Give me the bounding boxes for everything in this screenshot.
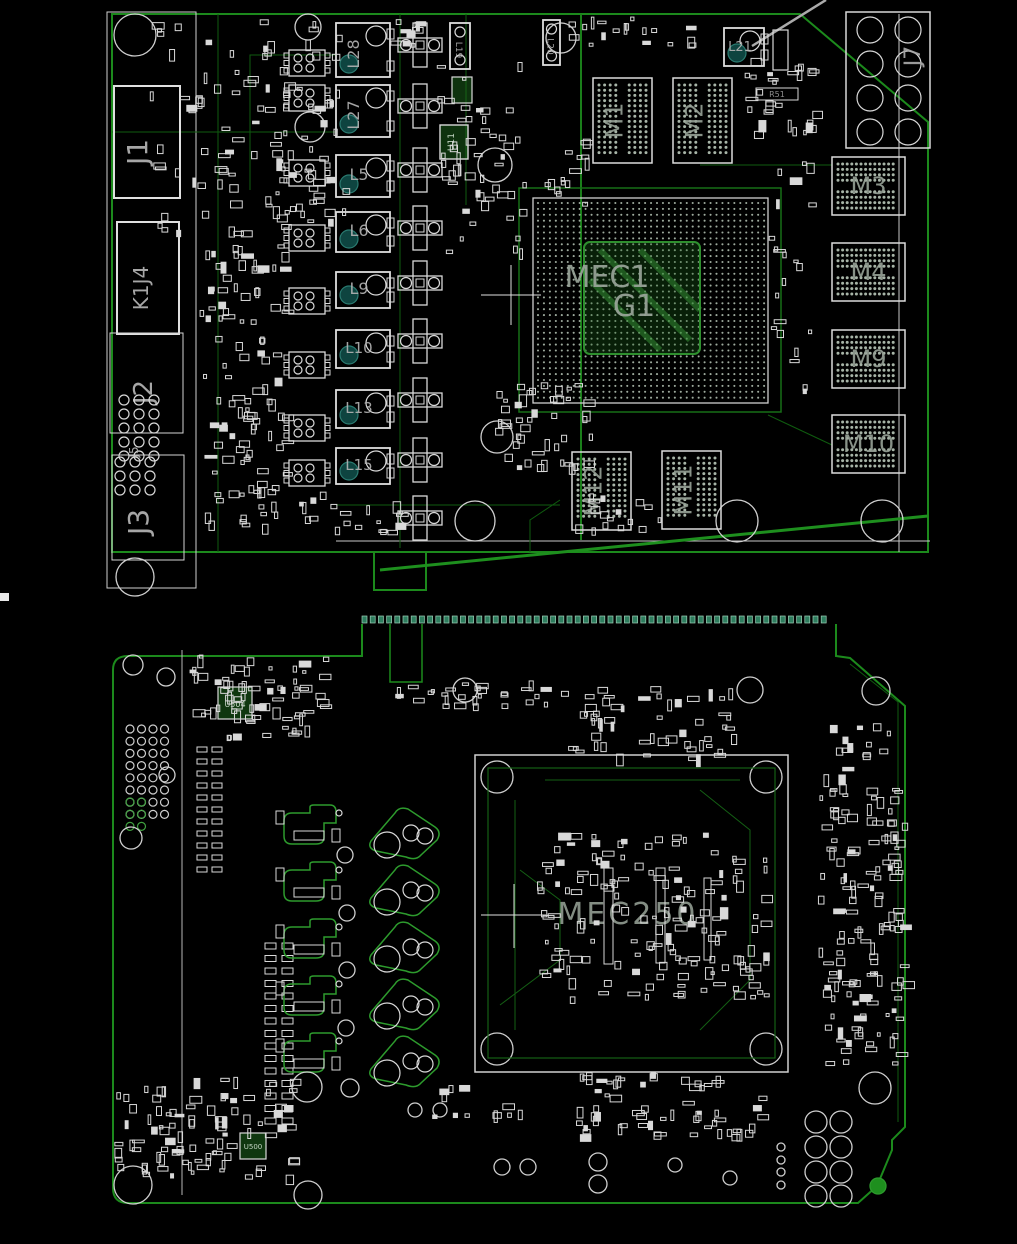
corner-hole [481,1033,513,1065]
driver-ic [284,352,330,378]
label-J1: J1 [121,139,154,167]
svg-text:K1J4: K1J4 [129,266,153,310]
svg-text:L28: L28 [344,39,363,68]
svg-text:L9: L9 [349,279,368,298]
mounting-hole [455,501,495,541]
hole [830,1136,852,1158]
chip-M10: M10 [832,415,905,473]
component-cluster [545,139,593,206]
via-grid [126,725,169,818]
inductor-L15: L15 [336,448,394,484]
svg-text:J3: J3 [122,509,155,537]
component-cluster [200,245,294,324]
label-J7: J7 [901,46,926,69]
trace [768,415,832,445]
pin-holes-J5 [115,457,155,495]
svg-text:J1: J1 [121,139,154,167]
hole [777,1156,785,1164]
chip-M4: M4 [832,243,905,301]
svg-text:G1: G1 [613,289,655,324]
component-cluster [818,724,914,1066]
connector-J3 [112,455,184,560]
copper-island [370,808,439,859]
hole [830,1111,852,1133]
edge-connector-pads [362,616,826,623]
svg-text:L10: L10 [345,339,372,357]
svg-text:M12: M12 [580,465,608,516]
hole [589,1175,607,1193]
copper-island [370,922,439,973]
mounting-hole [481,421,513,453]
copper-island [276,976,342,1015]
inductor-L5: L5 [336,155,394,197]
label-K1J4: K1J4 [129,266,153,310]
hole [777,1168,785,1176]
inductor-L13: L13 [336,390,394,428]
svg-text:L13: L13 [345,399,372,417]
cross-component [398,261,442,305]
cross-component [398,378,442,422]
cross-component [398,84,442,128]
chip-M3: M3 [832,157,905,215]
inductor-L9: L9 [336,272,394,308]
chip-green [452,77,472,103]
trace [500,870,560,1005]
hole [408,1103,422,1117]
copper-island [370,1036,439,1087]
hole [589,1153,607,1171]
hole [520,1159,536,1175]
svg-text:L5: L5 [349,165,368,184]
corner-hole [481,761,513,793]
label-G1: G1 [613,289,655,324]
connector-J7 [846,12,930,148]
via-grid-green [126,798,146,830]
component-cluster [433,1085,523,1122]
svg-text:M11: M11 [670,464,698,515]
svg-text:L27: L27 [344,100,363,129]
cross-component [398,206,442,250]
hole [337,847,353,863]
hole [123,655,143,675]
component-cluster [569,17,696,48]
trace-diagonal [380,516,928,570]
component-cluster [190,655,332,741]
chip-M9: M9 [832,330,905,388]
component-cluster [577,1072,769,1141]
component-cluster [396,681,552,711]
copper-island [276,1033,342,1072]
hole [859,1072,891,1104]
component-cluster [437,62,527,259]
hole [805,1136,827,1158]
hole [830,1161,852,1183]
cross-component [398,438,442,482]
inductor-L27: L27 [336,85,394,137]
inductor-L6: L6 [336,212,394,252]
hole [339,962,355,978]
hole [723,1171,737,1185]
driver-ic [284,415,330,441]
hole [777,1143,785,1151]
hole [339,905,355,921]
hole [341,1079,359,1097]
component-cluster [769,162,816,394]
svg-text:L19: L19 [453,42,463,59]
board-canvas: J1K1J4J2J5J3J7L28L27L5L6L9L10L13L15L19L2… [0,0,1017,1244]
copper-island [370,979,439,1030]
chamfer-line [752,0,826,46]
component-cluster [204,336,294,534]
green-pad [870,1178,886,1194]
label-U500: U500 [244,1143,262,1151]
svg-text:M3: M3 [851,172,887,200]
corner-hole [750,1033,782,1065]
svg-text:L20: L20 [545,38,555,55]
hole [805,1161,827,1183]
hole [338,1020,354,1036]
chip-M1: M1 [593,78,652,163]
hole [494,1159,510,1175]
hole [805,1111,827,1133]
copper-island [276,862,342,901]
hole [777,1181,785,1189]
pcb-assembly-sheet: J1K1J4J2J5J3J7L28L27L5L6L9L10L13L15L19L2… [0,0,1017,1244]
chip-M11: M11 [662,451,721,529]
driver-ic [284,50,330,76]
svg-text:U500: U500 [244,1143,262,1151]
hole [668,1158,682,1172]
hole [292,1072,322,1102]
mounting-hole [116,558,154,596]
edge-tick [0,593,9,601]
copper-island [276,919,342,958]
svg-text:M4: M4 [851,258,887,286]
cross-component [398,496,442,540]
svg-text:M2: M2 [681,103,709,139]
copper-island [276,805,342,844]
inductor-L10: L10 [336,330,394,368]
label-J3: J3 [122,509,155,537]
svg-text:L15: L15 [345,456,372,474]
board-tab [390,624,422,682]
hole [157,668,175,686]
inductor-body [773,30,788,70]
inductor-L19: L19 [450,23,470,69]
svg-text:J7: J7 [901,46,926,69]
svg-text:M10: M10 [843,430,894,458]
pin-holes-J7 [857,17,921,145]
label-R51: R51 [769,90,785,99]
hole [294,1181,322,1209]
resistor-column [265,943,293,1124]
slot-pad [704,878,711,960]
svg-text:L6: L6 [349,221,368,240]
svg-text:M9: M9 [851,345,887,373]
copper-island [370,865,439,916]
mounting-hole [114,14,156,56]
top-board-view: J1K1J4J2J5J3J7L28L27L5L6L9L10L13L15L19L2… [0,0,930,601]
cross-component [398,319,442,363]
trace [530,500,560,552]
inductor-L28: L28 [336,23,394,77]
cross-component [398,148,442,192]
resistor-column [197,747,222,872]
svg-text:M1: M1 [601,103,629,139]
component-cluster [300,492,409,535]
component-cluster [391,20,426,47]
svg-text:R51: R51 [769,90,785,99]
corner-hole [750,761,782,793]
hole [737,677,763,703]
chip-M2: M2 [673,78,732,163]
bottom-board-view: MEC250U504U500 [113,616,915,1209]
svg-text:L21: L21 [728,40,752,55]
